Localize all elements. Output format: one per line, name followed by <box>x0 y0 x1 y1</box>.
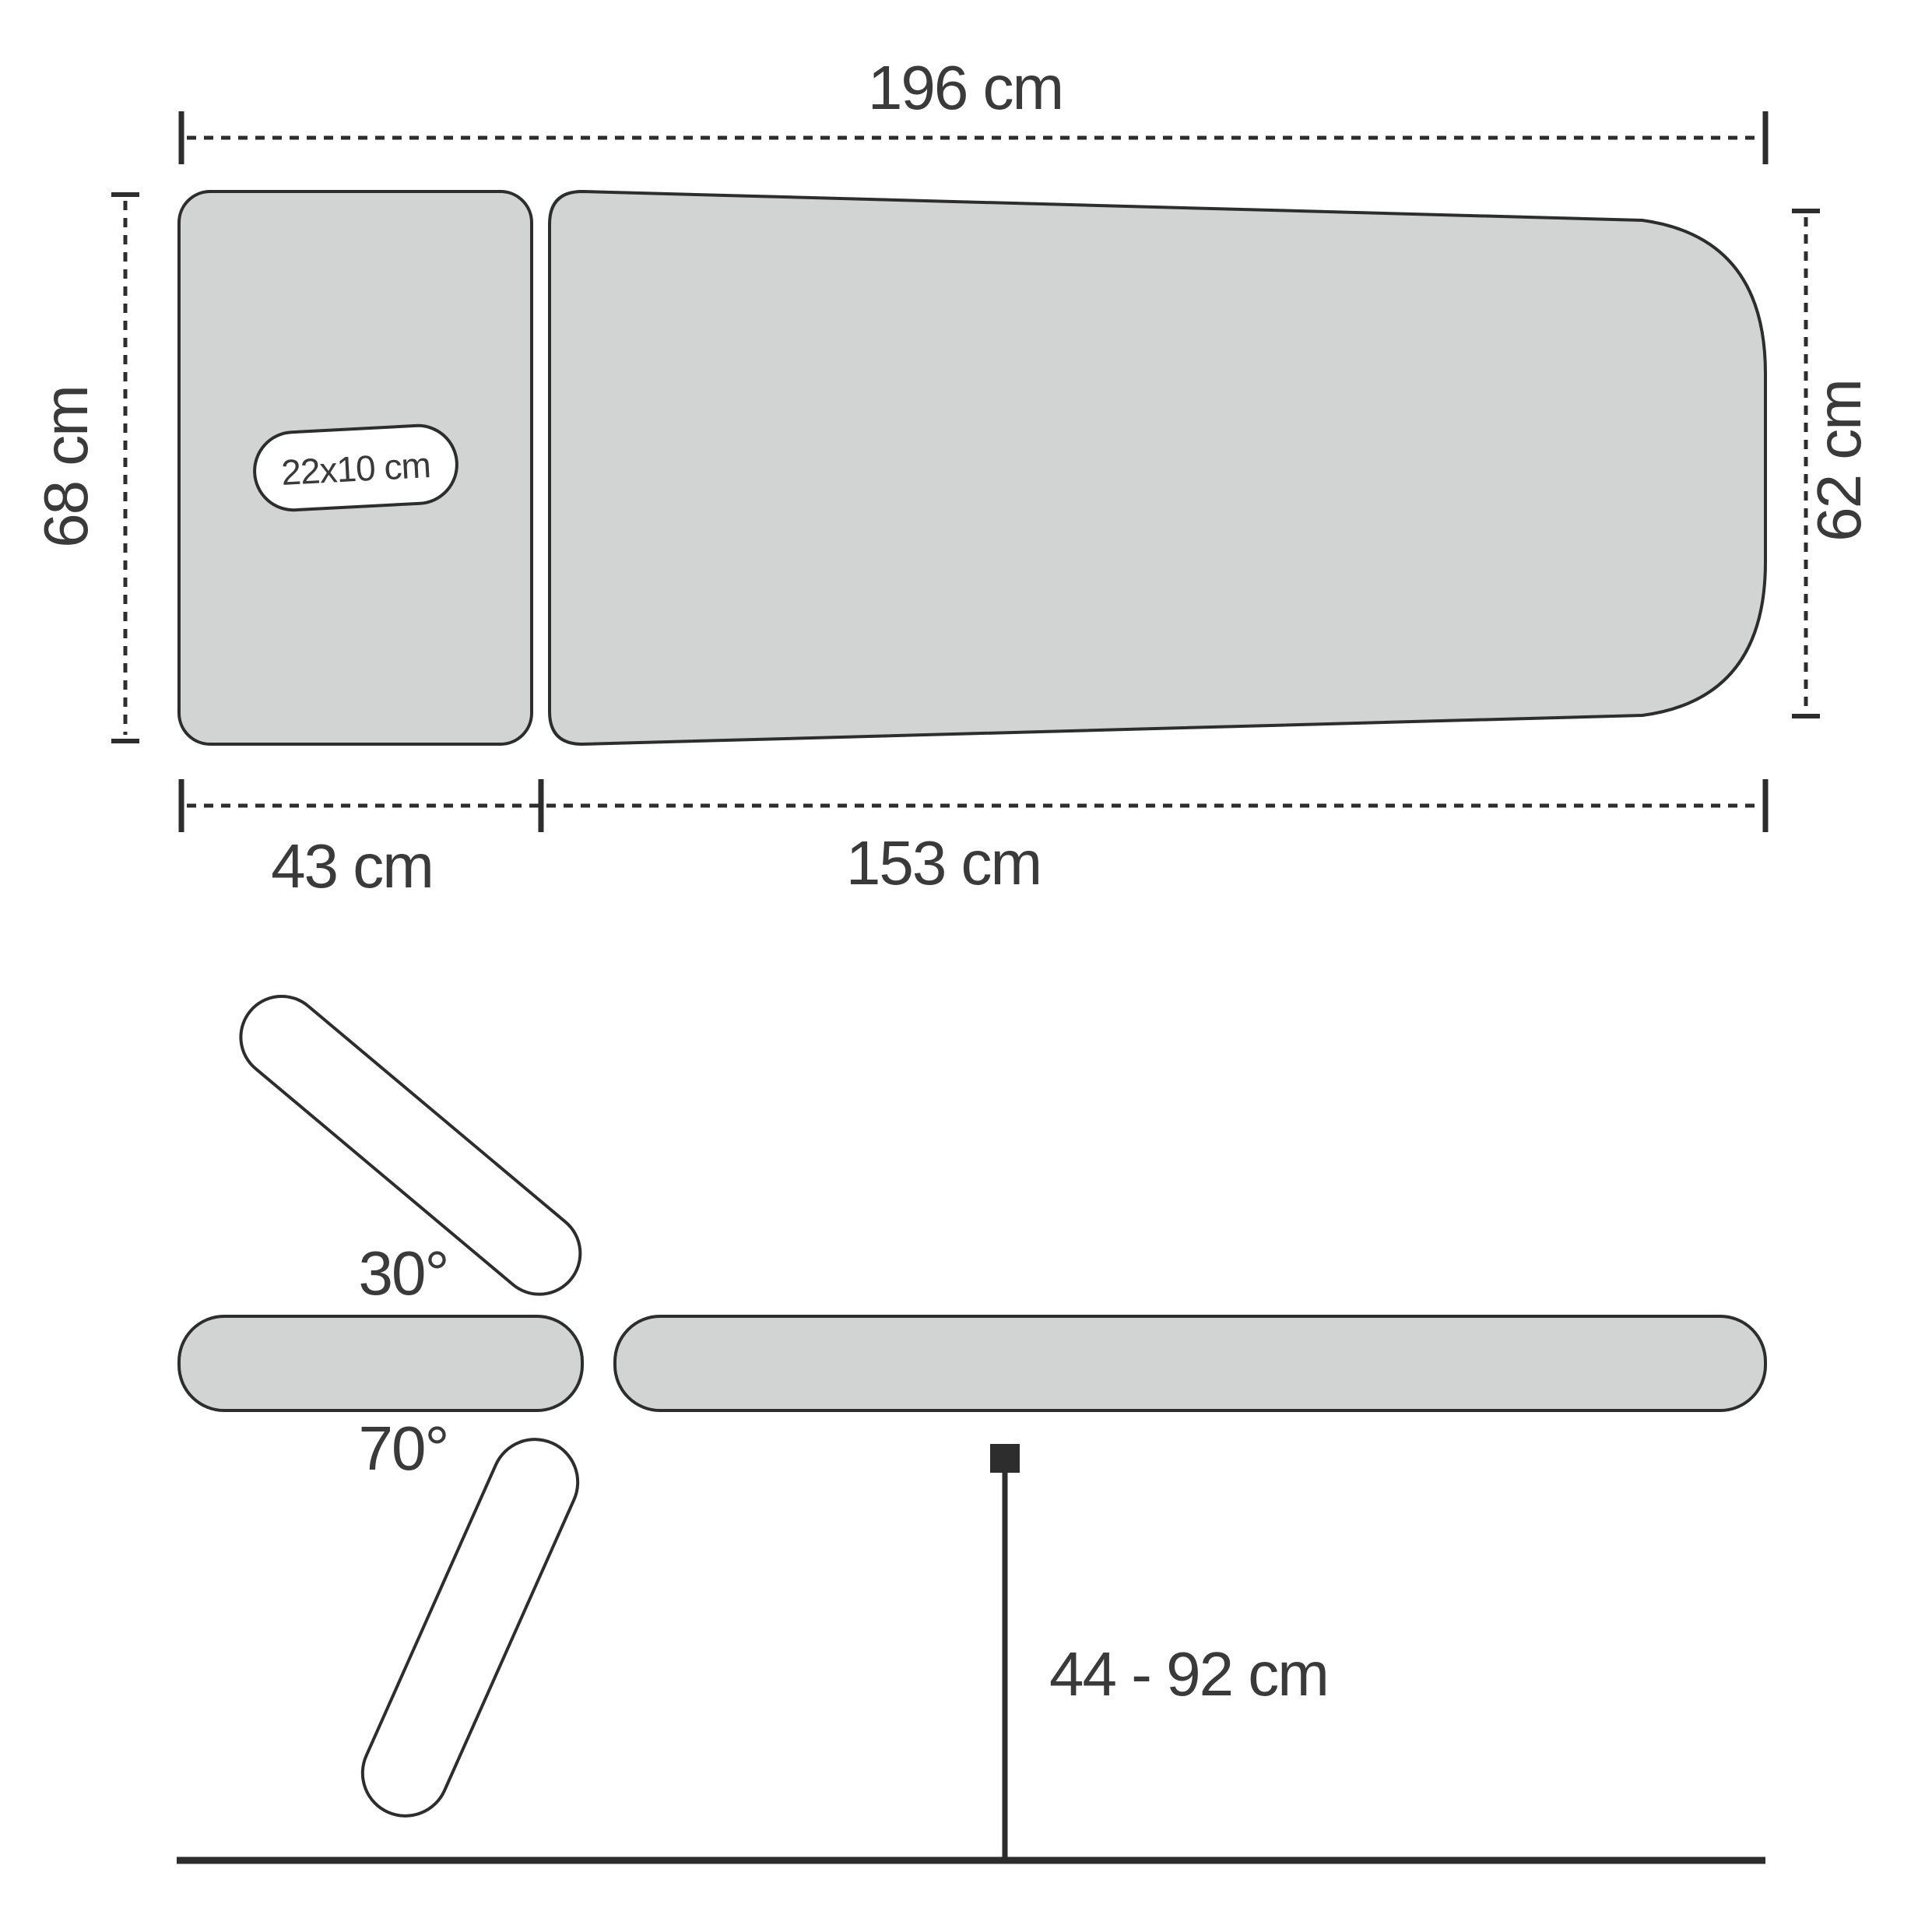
total-length-label: 196 cm <box>868 53 1063 122</box>
main-section-side-view <box>615 1316 1765 1410</box>
face-hole: 22x10 cm <box>253 423 459 511</box>
headrest-lowered-outline <box>349 1426 592 1830</box>
dimension-head-width: 68 cm <box>31 195 139 741</box>
headrest-down-angle-label: 70° <box>359 1414 448 1483</box>
diagram-canvas: 196 cm 22x10 cm 68 cm <box>0 0 1932 1932</box>
top-view: 196 cm 22x10 cm 68 cm <box>31 53 1874 901</box>
headrest-up-angle-label: 30° <box>359 1238 448 1308</box>
massage-table-dimensions-diagram: 196 cm 22x10 cm 68 cm <box>0 0 1932 1932</box>
main-section-top-view <box>550 191 1765 744</box>
main-section-length-label: 153 cm <box>846 828 1041 898</box>
side-view: 30° 70° 44 - 92 cm <box>177 980 1765 1860</box>
dimension-total-length: 196 cm <box>181 53 1765 164</box>
foot-width-label: 62 cm <box>1804 380 1874 542</box>
head-width-label: 68 cm <box>31 386 100 548</box>
dimension-sections-length: 43 cm 153 cm <box>181 779 1765 901</box>
height-indicator-knob <box>990 1444 1020 1473</box>
headrest-length-label: 43 cm <box>271 831 433 901</box>
headrest-side-view <box>179 1316 582 1410</box>
dimension-foot-width: 62 cm <box>1792 211 1874 716</box>
face-hole-label: 22x10 cm <box>280 444 431 493</box>
height-indicator: 44 - 92 cm <box>990 1444 1328 1860</box>
height-range-label: 44 - 92 cm <box>1049 1639 1328 1709</box>
